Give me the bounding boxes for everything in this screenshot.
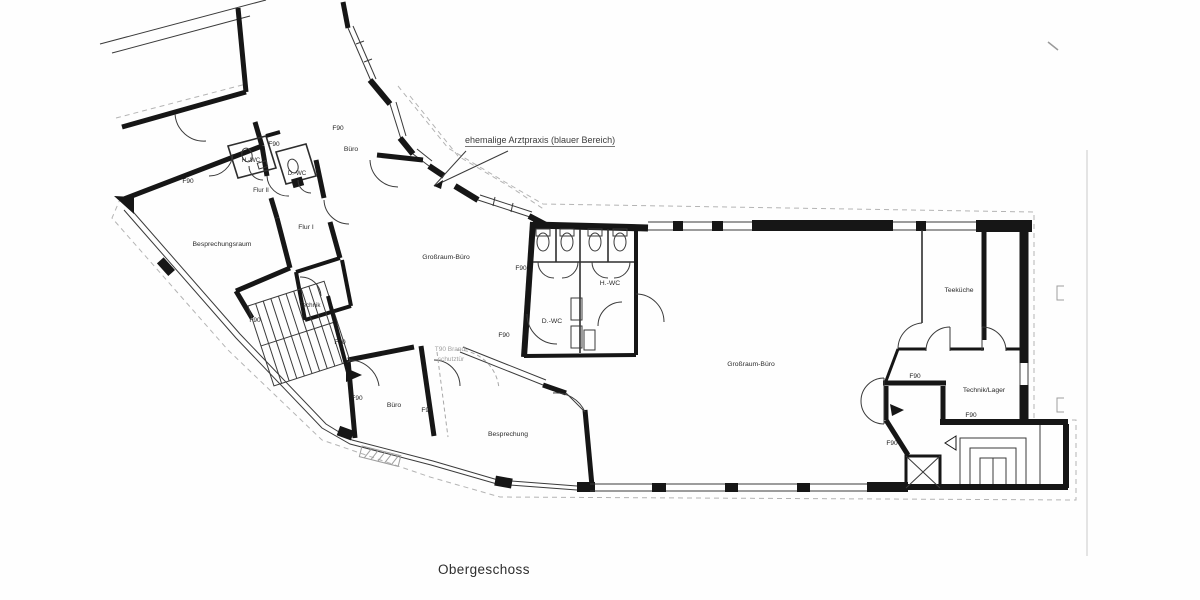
annotation-leader-line — [434, 151, 508, 189]
room-label: D.-WC — [542, 318, 562, 325]
window-symbols — [1057, 286, 1064, 412]
fire-rating-label: F90 — [351, 395, 363, 402]
fire-door-note: schutztür — [438, 356, 465, 363]
room-label: Großraum-Büro — [727, 361, 775, 368]
grey-note-labels-layer: T90 Brand-schutztür — [435, 346, 468, 363]
room-label: H.-WC — [600, 280, 620, 287]
door-swings — [175, 114, 1006, 437]
fire-door-note: T90 Brand- — [435, 346, 468, 353]
fire-rating-label: F90 — [249, 317, 261, 324]
fire-rating-label: F90 — [909, 373, 921, 380]
fire-rating-label: F90 — [334, 339, 346, 346]
room-label: Flur II — [253, 187, 269, 194]
room-label: H.-WC — [242, 157, 261, 164]
fire-rating-label: F90 — [421, 407, 433, 414]
room-label: Technik/Lager — [963, 387, 1006, 394]
fire-rating-label: F90 — [268, 141, 280, 148]
wc-fixtures — [240, 147, 627, 251]
room-label: Großraum-Büro — [422, 254, 470, 261]
fire-rating-label: F90 — [332, 125, 344, 132]
room-label: Flur I — [298, 224, 314, 231]
room-label: D.-WC — [288, 170, 307, 177]
room-label: Technik — [300, 302, 322, 309]
plan-title: Obergeschoss — [438, 562, 530, 577]
elevator-shaft — [906, 456, 940, 488]
wc-block-walls — [524, 222, 648, 357]
right-rooms-walls — [883, 230, 1068, 488]
floor-plan-page: BüroH.-WCD.-WCFlur IIBesprechungsraumFlu… — [0, 0, 1200, 600]
big-room-walls — [577, 220, 1032, 492]
right-staircase — [945, 436, 1026, 484]
room-label: Büro — [344, 146, 359, 153]
former-practice-annotation: ehemalige Arztpraxis (blauer Bereich) — [465, 135, 615, 147]
floor-plan-drawing: BüroH.-WCD.-WCFlur IIBesprechungsraumFlu… — [0, 0, 1200, 600]
room-label: Büro — [387, 402, 402, 409]
fire-rating-label: F90 — [886, 440, 898, 447]
room-label: Teeküche — [944, 287, 973, 294]
fire-rating-label: F90 — [515, 265, 527, 272]
fire-rating-label: F90 — [498, 332, 510, 339]
lower-left-walls — [348, 346, 595, 492]
room-label: Besprechungsraum — [193, 241, 252, 248]
room-label: Besprechung — [488, 431, 528, 438]
fire-rating-label: F90 — [965, 412, 977, 419]
fire-rating-label: F90 — [182, 178, 194, 185]
